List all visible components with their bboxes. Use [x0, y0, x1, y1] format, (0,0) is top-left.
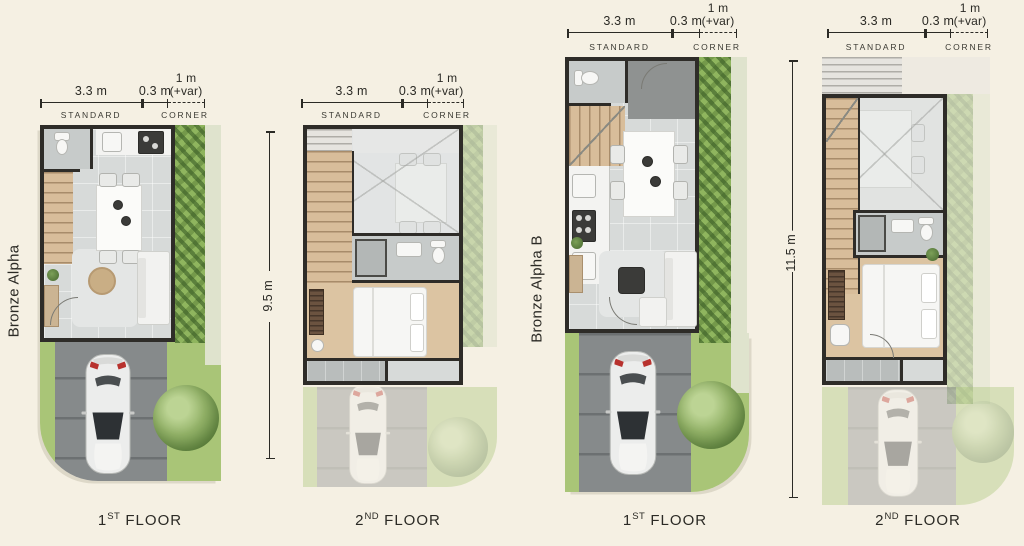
tree-ghost — [952, 401, 1014, 463]
height-dimension-line — [792, 60, 793, 235]
wardrobe — [828, 270, 845, 320]
balcony — [826, 360, 900, 381]
dimension-line-corner — [951, 32, 988, 33]
dim-standard-label: STANDARD — [827, 42, 925, 52]
dimension-line-wall — [925, 32, 951, 33]
stairs — [826, 98, 860, 294]
sink-icon — [891, 219, 914, 233]
dim-corner-label: CORNER — [940, 42, 998, 52]
chair — [830, 324, 850, 346]
roof-hatch — [822, 57, 902, 94]
height-dimension: 11.5 m — [784, 230, 798, 275]
hedge-ghost — [947, 94, 973, 404]
dim-corner-value: 1 m (+var) — [948, 2, 992, 28]
dim-standard-value: 3.3 m — [827, 15, 925, 28]
shower-icon — [858, 215, 886, 252]
house-outline — [822, 94, 947, 385]
plant-icon — [926, 248, 939, 261]
roof-ghost — [902, 57, 990, 94]
panel-bronze-alpha-b-2nd-floor: 11.5 m 3.3 m 0.3 m 1 m (+var) STANDARD C… — [0, 0, 1024, 546]
dimension-line-standard — [827, 32, 925, 33]
toilet-bowl-icon — [920, 224, 933, 241]
car-ghost — [870, 387, 926, 499]
floor-plan-sheet: Bronze Alpha 3.3 m 0.3 m 1 m (+var) STAN… — [0, 0, 1024, 546]
height-dimension-line — [792, 272, 793, 498]
floor-label: 2ND FLOOR — [850, 511, 986, 529]
lot-ghost — [822, 387, 1014, 505]
